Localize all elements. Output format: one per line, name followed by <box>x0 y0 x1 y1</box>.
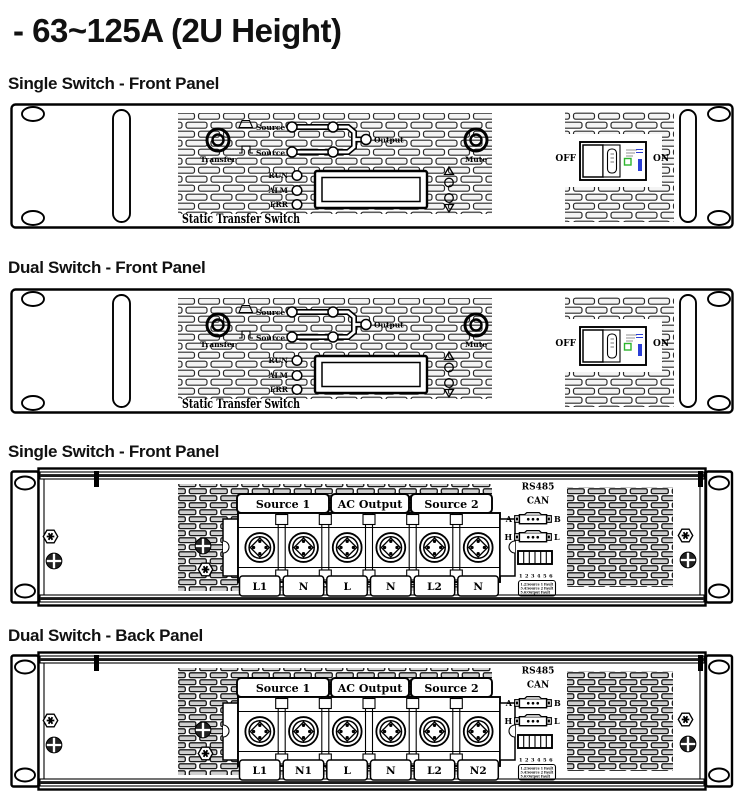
cross-screw <box>46 737 62 753</box>
cross-screw <box>195 538 211 554</box>
err-led <box>292 200 302 210</box>
run-led-label: RUN <box>268 356 288 365</box>
rs485-label: RS485 <box>522 667 555 677</box>
mute-button: Mute <box>465 314 487 349</box>
terminal-screw <box>376 533 405 562</box>
terminal-label: N <box>386 581 396 593</box>
port-l-label: L <box>554 716 560 726</box>
dual-switch-front-panel-drawing: Transfer Source 1 Source 2 Output RUN AL… <box>10 288 734 414</box>
alm-led-label: ALM <box>268 186 288 195</box>
latch-left <box>94 471 99 487</box>
can-label: CAN <box>527 497 549 507</box>
vent-grille-right <box>567 671 673 771</box>
terminal-screw <box>333 533 362 562</box>
terminal-screw <box>376 717 405 746</box>
port-l-label: L <box>554 532 560 542</box>
rs485-connector <box>515 513 552 524</box>
breaker-on-label: ON <box>653 154 669 164</box>
group-acoutput-label: AC Output <box>337 498 403 511</box>
terminal-label: N <box>473 581 483 593</box>
terminal-block: Source 1 AC Output Source 2 L1 N1 L N L2 <box>223 678 515 780</box>
alm-led-label: ALM <box>268 371 288 380</box>
terminal-label: L <box>344 765 352 777</box>
vent-grille-right <box>567 487 673 587</box>
single-switch-front-panel-drawing: Transfer Source 1 Source 2 Output RUN AL… <box>10 103 734 229</box>
page: - 63~125A (2U Height) Single Switch - Fr… <box>0 0 742 802</box>
cross-screw <box>680 552 696 568</box>
section-title-2: Dual Switch - Front Panel <box>8 258 205 278</box>
mute-button: Mute <box>465 129 487 164</box>
section-title-4: Dual Switch - Back Panel <box>8 626 203 646</box>
terminal-screw <box>289 533 318 562</box>
mounting-ear-right <box>706 472 732 603</box>
pin-legend-row: 5.6:Output Fault <box>521 591 551 595</box>
terminal-block: Source 1 AC Output Source 2 L1 N L N L2 <box>223 494 515 596</box>
breaker-toggle <box>583 145 603 177</box>
terminal-label: L1 <box>252 581 267 593</box>
terminal-screw <box>420 717 449 746</box>
hex-screw <box>43 714 57 727</box>
group-acoutput-label: AC Output <box>337 682 403 695</box>
dual-switch-back-panel-drawing: Source 1 AC Output Source 2 L1 N1 L N L2 <box>10 651 734 791</box>
port-b-label: B <box>554 514 561 524</box>
mute-label: Mute <box>465 340 487 349</box>
latch-left <box>94 655 99 671</box>
page-title: - 63~125A (2U Height) <box>13 12 341 50</box>
terminal-label: L2 <box>427 581 442 593</box>
mounting-ear-left <box>12 656 39 787</box>
section-title-3: Single Switch - Front Panel <box>8 442 219 462</box>
hex-screw <box>198 747 212 760</box>
hex-screw <box>43 530 57 543</box>
alm-led <box>292 186 302 196</box>
pin-numbers: 1 2 3 4 5 6 <box>519 758 553 764</box>
terminal-label: N <box>299 581 309 593</box>
hex-screw <box>678 529 692 542</box>
alm-led <box>292 371 302 381</box>
led-indicators: RUN ALM ERR <box>268 171 302 210</box>
cross-screw <box>680 736 696 752</box>
group-source1-label: Source 1 <box>256 682 310 695</box>
lcd-display <box>315 356 427 393</box>
terminal-label: L1 <box>252 765 267 777</box>
breaker-off-label: OFF <box>555 154 576 164</box>
group-source2-label: Source 2 <box>424 682 478 695</box>
port-a-label: A <box>505 698 513 708</box>
port-h-label: H <box>504 716 512 726</box>
device-label: Static Transfer Switch <box>182 397 300 412</box>
terminal-screw <box>245 717 274 746</box>
section-title-1: Single Switch - Front Panel <box>8 74 219 94</box>
err-led-label: ERR <box>270 385 289 394</box>
breaker-off-label: OFF <box>555 339 576 349</box>
port-a-label: A <box>505 514 513 524</box>
run-led <box>292 171 302 181</box>
output-label: Output <box>374 321 404 330</box>
rs485-connector <box>515 697 552 708</box>
terminal-screw <box>333 717 362 746</box>
top-rail <box>40 656 704 663</box>
top-rail <box>40 472 704 479</box>
terminal-screw <box>245 533 274 562</box>
can-connector <box>515 715 552 726</box>
terminal-screw <box>289 717 318 746</box>
port-b-label: B <box>554 698 561 708</box>
cross-screw <box>46 553 62 569</box>
group-source2-label: Source 2 <box>424 498 478 511</box>
port-h-label: H <box>504 532 512 542</box>
transfer-label: Transfer <box>200 155 237 164</box>
single-switch-back-panel-drawing: Source 1 AC Output Source 2 L1 N L N L2 <box>10 467 734 607</box>
transfer-label: Transfer <box>200 340 237 349</box>
led-indicators: RUN ALM ERR <box>268 356 302 395</box>
hex-screw <box>198 563 212 576</box>
breaker-blue-bar <box>638 344 642 356</box>
group-source1-label: Source 1 <box>256 498 310 511</box>
hex-screw <box>678 713 692 726</box>
pin-legend-row: 5.6:Output Fault <box>521 775 551 779</box>
rs485-label: RS485 <box>522 483 555 493</box>
cross-screw <box>195 722 211 738</box>
output-label: Output <box>374 136 404 145</box>
terminal-screw <box>420 533 449 562</box>
run-led-label: RUN <box>268 171 288 180</box>
breaker-toggle <box>583 330 603 362</box>
terminal-label: N <box>386 765 396 777</box>
breaker-on-label: ON <box>653 339 669 349</box>
err-led <box>292 385 302 395</box>
mounting-ear-left <box>12 472 39 603</box>
err-led-label: ERR <box>270 200 289 209</box>
terminal-label: N1 <box>295 765 312 777</box>
mounting-ear-right <box>706 656 732 787</box>
device-label: Static Transfer Switch <box>182 212 300 227</box>
terminal-label: N2 <box>470 765 487 777</box>
terminal-label: L <box>344 581 352 593</box>
mute-label: Mute <box>465 155 487 164</box>
run-led <box>292 356 302 366</box>
can-label: CAN <box>527 681 549 691</box>
breaker-blue-bar <box>638 159 642 171</box>
lcd-display <box>315 171 427 208</box>
pin-numbers: 1 2 3 4 5 6 <box>519 574 553 580</box>
terminal-label: L2 <box>427 765 442 777</box>
terminal-screw <box>464 533 493 562</box>
can-connector <box>515 531 552 542</box>
terminal-screw <box>464 717 493 746</box>
